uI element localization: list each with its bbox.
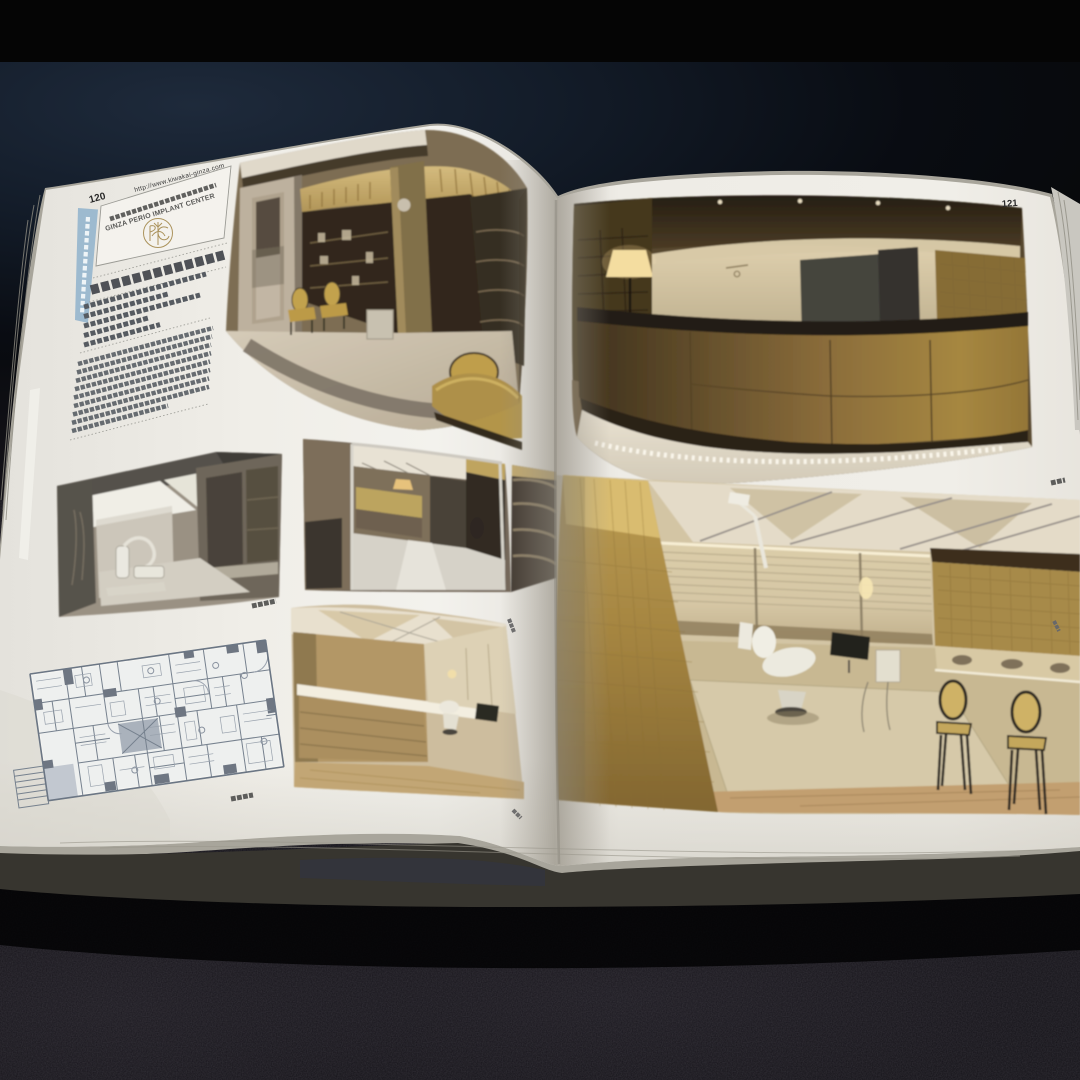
svg-text:121: 121 [1001, 198, 1018, 210]
